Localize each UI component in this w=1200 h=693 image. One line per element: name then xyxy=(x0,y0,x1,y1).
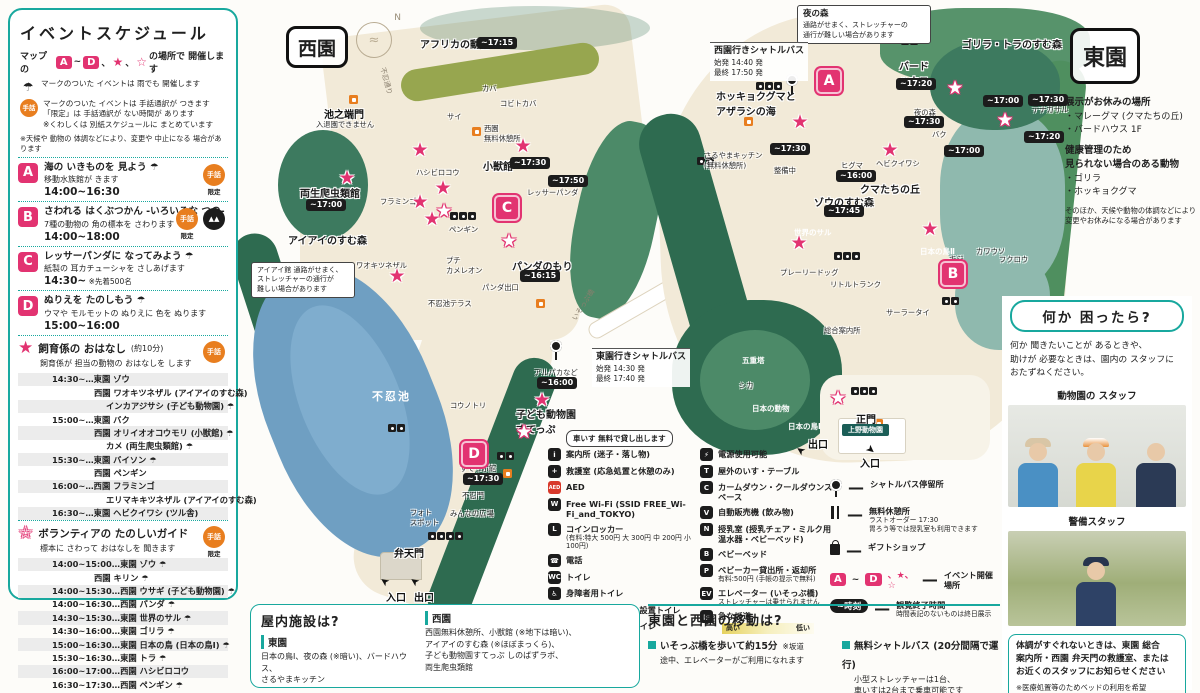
legend-item: ⚡電源使用可能 xyxy=(700,448,836,461)
map-callout: アイアイ館 通路がせまく、 ストレッチャーの通行が 難しい場合があります xyxy=(251,262,355,298)
square-bullet xyxy=(648,641,656,649)
map-label: さるやまキッチン (無料休憩所) xyxy=(704,151,762,171)
security-staff-caption: 警備スタッフ xyxy=(1002,514,1192,528)
map-label: みんなの広場 xyxy=(450,509,494,519)
keeper-talk-row: 西園 ワオキツネザル (アイアイのすむ森) xyxy=(18,386,228,399)
transfer-bridge-note: ※坂道 xyxy=(783,642,804,651)
keeper-talk-row: 西園 オリイオオコウモリ (小獣館) ☂ xyxy=(18,426,228,439)
sign-language-icon: 手話 xyxy=(203,526,225,548)
compass-north-icon: ≈N xyxy=(356,22,392,58)
umbrella-note-text: マークのついた イベントは 雨でも 開催します xyxy=(41,79,200,95)
legend-item: WCトイレ xyxy=(548,571,696,584)
viewing-end-time-chip: ~17:50 xyxy=(548,175,588,187)
legend-icon: L xyxy=(548,523,561,536)
keeper-talk-row: カメ (両生爬虫類館) ☂ xyxy=(18,440,228,453)
volunteer-guide-row: 15:30~16:30…東園 トラ ☂ xyxy=(18,651,228,664)
transfer-panel: 東園と西園の移動は? いそっぷ橋を歩いて約15分 ※坂道 途中、エレベーターがご… xyxy=(648,604,1000,693)
volunteer-guide-row: 14:00~16:30…西園 パンダ ☂ xyxy=(18,598,228,611)
legend-label: AED xyxy=(566,482,585,492)
transfer-title: 東園と西園の移動は? xyxy=(648,610,1000,629)
volunteer-guide-header: ☆ ボランティアの たのしいガイド 標本に さわって おはなしを 聞きます 手話… xyxy=(18,520,228,558)
map-label: 整備中 xyxy=(774,166,796,176)
map-label: シカ xyxy=(739,381,754,391)
event-stars: 、★、☆ xyxy=(888,568,916,591)
viewing-end-time-chip: ~17:00 xyxy=(983,95,1023,107)
legend-icon: ⚡ xyxy=(700,448,713,461)
map-label: 日本の動物 xyxy=(752,403,790,414)
map-label: 入口 xyxy=(386,589,406,604)
legend-label: 救護室 (応急処置と休憩のみ) xyxy=(566,466,675,476)
map-label: コビトカバ xyxy=(500,99,536,109)
event-icons: 手話限定▲▲ xyxy=(175,208,226,240)
volunteer-guide-desc: 標本に さわって おはなしを 聞きます xyxy=(40,543,228,554)
indoor-facilities-panel: 屋内施設は? 東園 日本の鳥Ⅰ、夜の森 (※暗い)、バードハウス、 さるやまキッ… xyxy=(250,604,640,688)
staff-person xyxy=(1074,438,1118,507)
sign-language-icon: 手話 xyxy=(203,341,225,363)
event-title: レッサーパンダに なってみよう ☂ xyxy=(44,251,228,263)
legend-item: V自動販売機 (飲み物) xyxy=(700,506,836,519)
map-label: 五重塔 xyxy=(742,355,765,366)
badge-a: A xyxy=(56,56,72,69)
legend-item: Lコインロッカー(有料:特大 500円 大 300円 中 200円 小 100円… xyxy=(548,523,696,551)
map-label: 上野動物園 xyxy=(842,424,889,436)
facility-icons xyxy=(834,252,860,260)
map-label: フォト スポット xyxy=(410,508,439,528)
map-label: ホッキョクグマと アザラシの海 xyxy=(716,88,796,118)
legend-rest-label: 無料休憩所 ラストオーダー 17:30 胃ろう等では授乳室も利用できます xyxy=(869,506,978,533)
event-letter-badge: D xyxy=(18,296,38,316)
indoor-west-list: 西園無料休憩所、小獣館 (※地下は暗い)、 アイアイのすむ森 (※ほぼまっくら)… xyxy=(425,627,629,673)
keeper-talk-row: 西園 ペンギン xyxy=(18,466,228,479)
zoo-map-poster: 西園 東園 ≈N アフリカの動物池之端門入退園できません不忍通りカバコビトカバサ… xyxy=(0,0,1200,693)
legend-event-places: A ~ D 、★、☆ — イベント開催場所 xyxy=(830,568,998,591)
map-label: テナガザル xyxy=(1032,105,1068,115)
health-animal-item: ・ゴリラ xyxy=(1065,173,1197,187)
legend-icon: W xyxy=(548,498,561,511)
event-icons: 手話限定 xyxy=(202,164,226,196)
event-star-icon: ★ xyxy=(790,232,807,254)
viewing-end-time-chip: ~17:15 xyxy=(477,37,517,49)
viewing-end-time-chip: ~17:20 xyxy=(896,78,936,90)
event-star-icon: ★ xyxy=(791,111,808,133)
rest-area-icon xyxy=(503,469,512,478)
keeper-talk-duration: (約10分) xyxy=(131,343,163,354)
map-label: 不忍門 xyxy=(462,491,484,501)
legend-label: トイレ xyxy=(566,572,591,582)
event-star-icon: ★ xyxy=(921,218,938,240)
event-marker-a: A xyxy=(816,68,842,94)
shuttle-bus-note: 西園行きシャトルバス始発 14:40 発 最終 17:50 発 xyxy=(710,42,808,81)
event-item: Bさわれる はくぶつかん -いろいろな つの-7種の動物の 角の標本を さわりま… xyxy=(18,201,228,246)
indoor-east-heading: 東園 xyxy=(261,635,411,649)
map-label: 弁天門 xyxy=(394,545,424,560)
event-star-icon: ★ xyxy=(411,139,428,161)
square-bullet xyxy=(842,641,850,649)
map-label: 小獣館 xyxy=(483,158,513,173)
intro-post: の場所で 開催します xyxy=(149,49,228,75)
rest-area-icon xyxy=(349,95,358,104)
event-title: ぬりえを たのしもう ☂ xyxy=(44,295,228,307)
dash: — xyxy=(848,478,864,497)
umbrella-note: ☂ マークのついた イベントは 雨でも 開催します xyxy=(20,79,228,95)
badge-d: D xyxy=(83,56,99,69)
legend-rest-house: — 無料休憩所 ラストオーダー 17:30 胃ろう等では授乳室も利用できます xyxy=(830,505,998,533)
legend-item: Cカームダウン・クールダウンスペース xyxy=(700,481,836,503)
event-item: Dぬりえを たのしもう ☂ウマや モルモットの ぬりえに 色を ぬります15:0… xyxy=(18,290,228,335)
indoor-east-list: 日本の鳥Ⅰ、夜の森 (※暗い)、バードハウス、 さるやまキッチン xyxy=(261,651,411,686)
event-marker-c: C xyxy=(494,195,520,221)
viewing-end-time-chip: ~16:00 xyxy=(836,170,876,182)
event-time: 15:00~16:00 xyxy=(44,320,228,332)
umbrella-icon: ☂ xyxy=(20,79,36,95)
volunteer-guide-row: 14:00~15:00…東園 ゾウ ☂ xyxy=(18,558,228,571)
map-label: 日本の鳥Ⅰ xyxy=(788,421,821,432)
legend-icon: ☎ xyxy=(548,554,561,567)
legend-icon: T xyxy=(700,465,713,478)
legend-icon: AED xyxy=(548,481,561,494)
east-forest-center-light xyxy=(700,330,810,430)
event-locations-line: マップの A ~ D 、 ★ 、 ☆ の場所で 開催します xyxy=(20,49,228,75)
map-label: リトルトランク xyxy=(830,280,881,290)
legend-label: 身障者用トイレ xyxy=(566,588,623,598)
closed-exhibits-title: 展示がお休みの場所 xyxy=(1065,97,1151,108)
legend-label: 授乳室 (授乳チェア・ミルク用温水器・ベビーベッド) xyxy=(718,524,836,545)
legend-sub: (有料:特大 500円 大 300円 中 200円 小 100円) xyxy=(566,534,696,551)
keeper-talk-row: 16:30~…東園 ヘビクイワシ (ツル舎) xyxy=(18,507,228,520)
viewing-end-time-chip: ~17:00 xyxy=(306,199,346,211)
legend-gift-shop: — ギフトショップ xyxy=(830,541,998,560)
legend-icon: V xyxy=(700,506,713,519)
event-open-star-icon: ★ xyxy=(435,200,452,222)
legend-icon: B xyxy=(700,548,713,561)
keeper-talk-header: ★ 飼育係の おはなし (約10分) 飼育係が 担当の動物の おはなしを します… xyxy=(18,335,228,373)
intro-comma1: 、 xyxy=(101,56,110,69)
event-schedule-panel: イベントスケジュール マップの A ~ D 、 ★ 、 ☆ の場所で 開催します… xyxy=(8,8,238,600)
keeper-talk-row: 14:30~…東園 ゾウ xyxy=(18,373,228,386)
event-open-star-icon: ★ xyxy=(515,421,532,443)
map-label: パンダ出口 xyxy=(482,283,519,293)
dash: — xyxy=(846,541,862,560)
dash: — xyxy=(922,570,938,589)
dash: — xyxy=(847,505,863,524)
volunteer-guide-row: 15:00~16:30…東園 日本の鳥 (日本の鳥Ⅰ) ☂ xyxy=(18,638,228,651)
event-desc: ウマや モルモットの ぬりえに 色を ぬります xyxy=(44,308,228,319)
wheelchair-tooltip: 車いす 無料で貸し出します xyxy=(566,430,673,447)
event-letter-badge: B xyxy=(18,207,38,227)
facility-icons xyxy=(388,424,405,432)
zoo-staff-caption: 動物園の スタッフ xyxy=(1002,388,1192,402)
legend-icon: + xyxy=(548,465,561,478)
legend-event-label: イベント開催場所 xyxy=(944,570,998,591)
event-schedule-title: イベントスケジュール xyxy=(20,20,228,44)
legend-rest-sub: ラストオーダー 17:30 胃ろう等では授乳室も利用できます xyxy=(869,516,978,533)
viewing-end-time-chip: ~16:15 xyxy=(520,270,560,282)
legend-label: 電話 xyxy=(566,555,582,565)
event-body: レッサーパンダに なってみよう ☂紙製の 耳カチューシャを さしあげます14:3… xyxy=(44,251,228,288)
gift-bag-icon xyxy=(830,544,840,555)
map-label: 池之端門 xyxy=(324,106,364,121)
transfer-shuttle-sub: 小型ストレッチャーは1台、 車いすは2台まで乗車可能です xyxy=(854,674,1000,693)
keeper-talk-title: 飼育係の おはなし xyxy=(38,341,126,356)
rest-area-icon xyxy=(536,299,545,308)
event-letter-badge: A xyxy=(18,163,38,183)
legend-label: Free Wi-Fi (SSID FREE_Wi-Fi_and_TOKYO) xyxy=(566,499,696,520)
transfer-bridge-sub: 途中、エレベーターがご利用になれます xyxy=(660,655,826,666)
east-park-label: 東園 xyxy=(1070,28,1140,84)
security-staff-photo xyxy=(1008,531,1186,626)
sign-limited-icon: 手話限定 xyxy=(175,208,199,240)
intro-comma2: 、 xyxy=(125,56,134,69)
map-label: フクロウ xyxy=(999,255,1028,265)
viewing-end-time-chip: ~16:00 xyxy=(537,377,577,389)
sign-language-limited-badge: 手話 限定 xyxy=(202,526,226,558)
event-star-icon: ★ xyxy=(514,135,531,157)
indoor-west-heading: 西園 xyxy=(425,611,629,625)
east-note-small: そのほか、天候や動物の体調などにより 変更やお休みになる場合があります xyxy=(1065,206,1197,228)
map-label: 不忍池テラス xyxy=(428,299,472,309)
volunteer-guide-row: 16:30~17:30…西園 ペンギン ☂ xyxy=(18,678,228,691)
east-garden-notes: 展示がお休みの場所 ・マレーグマ (クマたちの丘)・バードハウス 1F 健康管理… xyxy=(1065,96,1197,227)
event-open-star-icon: ★ xyxy=(996,109,1013,131)
keeper-talk-row: エリマキキツネザル (アイアイのすむ森) xyxy=(18,493,228,506)
intro-pre: マップの xyxy=(20,49,54,75)
map-label: 不忍池 xyxy=(372,388,411,404)
event-body: 海の いきものを 見よう ☂移動水族館が きます14:00~16:30 xyxy=(44,162,228,199)
keeper-talk-desc: 飼育係が 担当の動物の おはなしを します xyxy=(40,358,228,369)
badge-d: D xyxy=(865,573,881,586)
legend-label: 自動販売機 (飲み物) xyxy=(718,507,794,517)
legend-icon: i xyxy=(548,448,561,461)
star-icon: ★ xyxy=(112,55,123,69)
limited-label: 限定 xyxy=(202,548,226,558)
map-label: プレーリードッグ xyxy=(780,268,838,278)
sign-limited-glyph: 手話 xyxy=(203,164,225,186)
sign-limited-glyph: 手話 xyxy=(176,208,198,230)
bus-stop-icon xyxy=(830,479,842,491)
staff-person xyxy=(1016,438,1060,507)
volunteer-guide-row: 14:30~15:30…東園 世界のサル ☂ xyxy=(18,611,228,624)
map-label: 総合案内所 xyxy=(824,326,860,336)
legend-item: T屋外のいす・テーブル xyxy=(700,465,836,478)
map-callout: 夜の森通路がせまく、ストレッチャーの 通行が難しい場合があります xyxy=(797,5,931,44)
facility-icons xyxy=(851,387,877,395)
event-extra: ※先着500名 xyxy=(86,277,131,286)
legend-gift-label: ギフトショップ xyxy=(868,542,925,552)
facility-icons xyxy=(497,452,514,460)
weather-disclaimer: ※天候や 動物の 体調などにより、変更や 中止になる 場合があります xyxy=(20,134,228,154)
map-label: アイアイのすむ森 xyxy=(288,232,367,247)
legend-item: N授乳室 (授乳チェア・ミルク用温水器・ベビーベッド) xyxy=(700,523,836,545)
rest-area-icon xyxy=(744,117,753,126)
event-star-icon: ★ xyxy=(388,265,405,287)
event-item: A海の いきものを 見よう ☂移動水族館が きます14:00~16:30手話限定 xyxy=(18,157,228,202)
sign-language-icon: 手話 xyxy=(20,99,38,117)
closed-exhibit-item: ・バードハウス 1F xyxy=(1065,124,1197,138)
legend-icon: WC xyxy=(548,571,561,584)
facility-icons xyxy=(450,212,476,220)
keeper-talk-row: 15:30~…東園 バイソン ☂ xyxy=(18,453,228,466)
viewing-end-time-chip: ~17:30 xyxy=(463,473,503,485)
volunteer-guide-row: 16:00~17:00…西園 ハシビロコウ xyxy=(18,665,228,678)
event-marker-d: D xyxy=(461,441,487,467)
keeper-talk-row: インカアジサシ (子ども動物園) ☂ xyxy=(18,400,228,413)
sign-limited-icon: 手話限定 xyxy=(202,164,226,196)
star-icon: ★ xyxy=(18,340,33,357)
open-star-icon: ☆ xyxy=(136,55,147,69)
badge-a: A xyxy=(830,573,846,586)
event-star-icon: ★ xyxy=(533,389,550,411)
horn-pin-icon: ▲▲ xyxy=(202,208,226,240)
event-open-star-icon: ★ xyxy=(829,387,846,409)
sign-language-badge: 手話 xyxy=(202,341,226,363)
map-label: 出口 xyxy=(414,589,434,604)
event-title: 海の いきものを 見よう ☂ xyxy=(44,162,228,174)
legend-item: Pベビーカー貸出所・返却所有料:500円 (手帳の提示で無料) xyxy=(700,564,836,584)
keeper-talk-schedule: 14:30~…東園 ゾウ西園 ワオキツネザル (アイアイのすむ森)インカアジサシ… xyxy=(18,373,228,520)
health-title: 健康管理のため 見られない場合のある動物 xyxy=(1065,145,1179,171)
event-time: 14:30~ ※先着500名 xyxy=(44,275,228,287)
event-time: 14:00~16:30 xyxy=(44,186,228,198)
facility-icons xyxy=(428,532,463,540)
help-panel: 何か 困ったら? 何か 聞きたいことが あるときや、 助けが 必要なときは、園内… xyxy=(1002,296,1192,690)
viewing-end-time-chip: ~17:00 xyxy=(944,145,984,157)
keeper-talk-row: 15:00~…東園 バク xyxy=(18,413,228,426)
legend-label: 案内所 (迷子・落し物) xyxy=(566,449,650,459)
viewing-end-time-chip: ~17:30 xyxy=(1028,94,1068,106)
zoo-staff-photo xyxy=(1008,405,1186,507)
legend-icon: EV xyxy=(700,587,713,600)
legend-item: WFree Wi-Fi (SSID FREE_Wi-Fi_and_TOKYO) xyxy=(548,498,696,520)
keeper-talk-row: 16:00~…西園 フラミンゴ xyxy=(18,480,228,493)
open-star-icon: ☆ xyxy=(18,525,33,542)
legend-label: 屋外のいす・テーブル xyxy=(718,466,799,476)
shuttle-bus-stop-icon xyxy=(550,340,562,352)
legend-item: +救護室 (応急処置と休憩のみ) xyxy=(548,465,696,478)
legend-item: AEDAED xyxy=(548,481,696,494)
legend-item: Bベビーベッド xyxy=(700,548,836,561)
legend-label: コインロッカー(有料:特大 500円 大 300円 中 200円 小 100円) xyxy=(566,524,696,551)
intro-tilde: ~ xyxy=(74,57,82,67)
volunteer-guide-row: 14:30~16:00…東園 ゴリラ ☂ xyxy=(18,625,228,638)
west-park-label: 西園 xyxy=(286,26,348,68)
viewing-end-time-chip: ~17:30 xyxy=(510,157,550,169)
map-label: 入退園できません xyxy=(316,120,374,130)
event-letter-badge: C xyxy=(18,252,38,272)
restaurant-icon xyxy=(830,506,841,519)
legend-label: ベビーベッド xyxy=(718,549,767,559)
staff-person xyxy=(1134,438,1178,507)
health-animal-item: ・ホッキョクグマ xyxy=(1065,186,1197,200)
first-aid-notice: 体調がすぐれないときは、東園 総合 案内所・西園 弁天門の救護室、または お近く… xyxy=(1008,634,1186,693)
event-desc: 紙製の 耳カチューシャを さしあげます xyxy=(44,263,228,274)
legend-icon: C xyxy=(700,481,713,494)
event-open-star-icon: ★ xyxy=(946,77,963,99)
legend-icon: N xyxy=(700,523,713,536)
map-label: バク xyxy=(932,130,947,140)
map-label: プチ カメレオン xyxy=(446,256,482,276)
volunteer-guide-row: 14:00~15:30…西園 ウサギ (子ども動物園) ☂ xyxy=(18,585,228,598)
indoor-facilities-title: 屋内施設は? xyxy=(261,611,411,630)
map-label: レッサーパンダ xyxy=(527,188,578,198)
event-open-star-icon: ★ xyxy=(500,230,517,252)
rest-area-icon xyxy=(472,127,481,136)
event-marker-b: B xyxy=(940,261,966,287)
limited-label: 限定 xyxy=(175,230,199,240)
volunteer-guide-title: ボランティアの たのしいガイド xyxy=(38,526,188,541)
viewing-end-time-chip: ~17:30 xyxy=(770,143,810,155)
first-aid-notice-text: 体調がすぐれないときは、東園 総合 案内所・西園 弁天門の救護室、または お近く… xyxy=(1016,640,1178,680)
viewing-end-time-chip: ~17:45 xyxy=(824,205,864,217)
limited-label: 限定 xyxy=(202,186,226,196)
event-star-icon: ★ xyxy=(434,177,451,199)
help-body: 何か 聞きたいことが あるときや、 助けが 必要なときは、園内の スタッフに お… xyxy=(1010,340,1184,381)
sign-note-text: マークのついた イベントは 手話通訳が つきます 「限定」は 手話通訳が ない時… xyxy=(43,99,213,130)
legend-item: ☎電話 xyxy=(548,554,696,567)
legend-icon: ♿ xyxy=(548,587,561,600)
facility-icons xyxy=(942,297,959,305)
volunteer-guide-row: 西園 キリン ☂ xyxy=(18,571,228,584)
legend-sub: 有料:500円 (手帳の提示で無料) xyxy=(718,575,816,583)
closed-exhibits-list: ・マレーグマ (クマたちの丘)・バードハウス 1F xyxy=(1065,111,1197,138)
event-star-icon: ★ xyxy=(881,139,898,161)
legend-label: ベビーカー貸出所・返却所有料:500円 (手帳の提示で無料) xyxy=(718,565,816,584)
security-person xyxy=(1074,557,1118,626)
viewing-end-time-chip: ~17:30 xyxy=(904,116,944,128)
legend-label: カームダウン・クールダウンスペース xyxy=(718,482,836,503)
transfer-shuttle-item: 無料シャトルバス (20分間隔で運行) 小型ストレッチャーは1台、 車いすは2台… xyxy=(842,634,1000,693)
map-label: サーラータイ xyxy=(886,308,930,318)
volunteer-guide-schedule: 14:00~15:00…東園 ゾウ ☂西園 キリン ☂14:00~15:30…西… xyxy=(18,558,228,692)
closed-exhibit-item: ・マレーグマ (クマたちの丘) xyxy=(1065,111,1197,125)
health-animals-list: ・ゴリラ・ホッキョクグマ xyxy=(1065,173,1197,200)
viewing-end-time-chip: ~17:20 xyxy=(1024,131,1064,143)
sign-language-note: 手話 マークのついた イベントは 手話通訳が つきます 「限定」は 手話通訳が … xyxy=(20,99,228,130)
tilde: ~ xyxy=(852,575,860,585)
shuttle-bus-note: 東園行きシャトルバス始発 14:30 発 最終 17:40 発 xyxy=(592,348,690,387)
horn-pin-glyph: ▲▲ xyxy=(203,208,225,230)
event-list: A海の いきものを 見よう ☂移動水族館が きます14:00~16:30手話限定… xyxy=(18,157,228,335)
legend-shuttle-stop-label: シャトルバス停留所 xyxy=(870,479,944,489)
map-label: ゴリラ・トラのすむ森 xyxy=(962,36,1062,51)
legend-item: ♿身障者用トイレ xyxy=(548,587,696,600)
map-label: コウノトリ xyxy=(450,401,486,411)
first-aid-notice-sub: ※医療処置等のためベッドの利用を希望 される方はスタッフにお知らせください xyxy=(1016,683,1178,693)
event-item: Cレッサーパンダに なってみよう ☂紙製の 耳カチューシャを さしあげます14:… xyxy=(18,246,228,291)
legend-label: 電源使用可能 xyxy=(718,449,767,459)
event-body: ぬりえを たのしもう ☂ウマや モルモットの ぬりえに 色を ぬります15:00… xyxy=(44,295,228,332)
map-label: ペンギン xyxy=(449,225,478,235)
help-title: 何か 困ったら? xyxy=(1010,300,1184,332)
map-label: カバ xyxy=(482,84,497,94)
legend-icon: P xyxy=(700,564,713,577)
map-label: サイ xyxy=(447,112,462,122)
legend-item: i案内所 (迷子・落し物) xyxy=(548,448,696,461)
legend-shuttle-stop: — シャトルバス停留所 xyxy=(830,478,998,497)
event-star-icon: ★ xyxy=(338,167,355,189)
transfer-bridge-item: いそっぷ橋を歩いて約15分 ※坂道 途中、エレベーターがご利用になれます xyxy=(648,634,826,693)
event-desc: 移動水族館が きます xyxy=(44,174,228,185)
